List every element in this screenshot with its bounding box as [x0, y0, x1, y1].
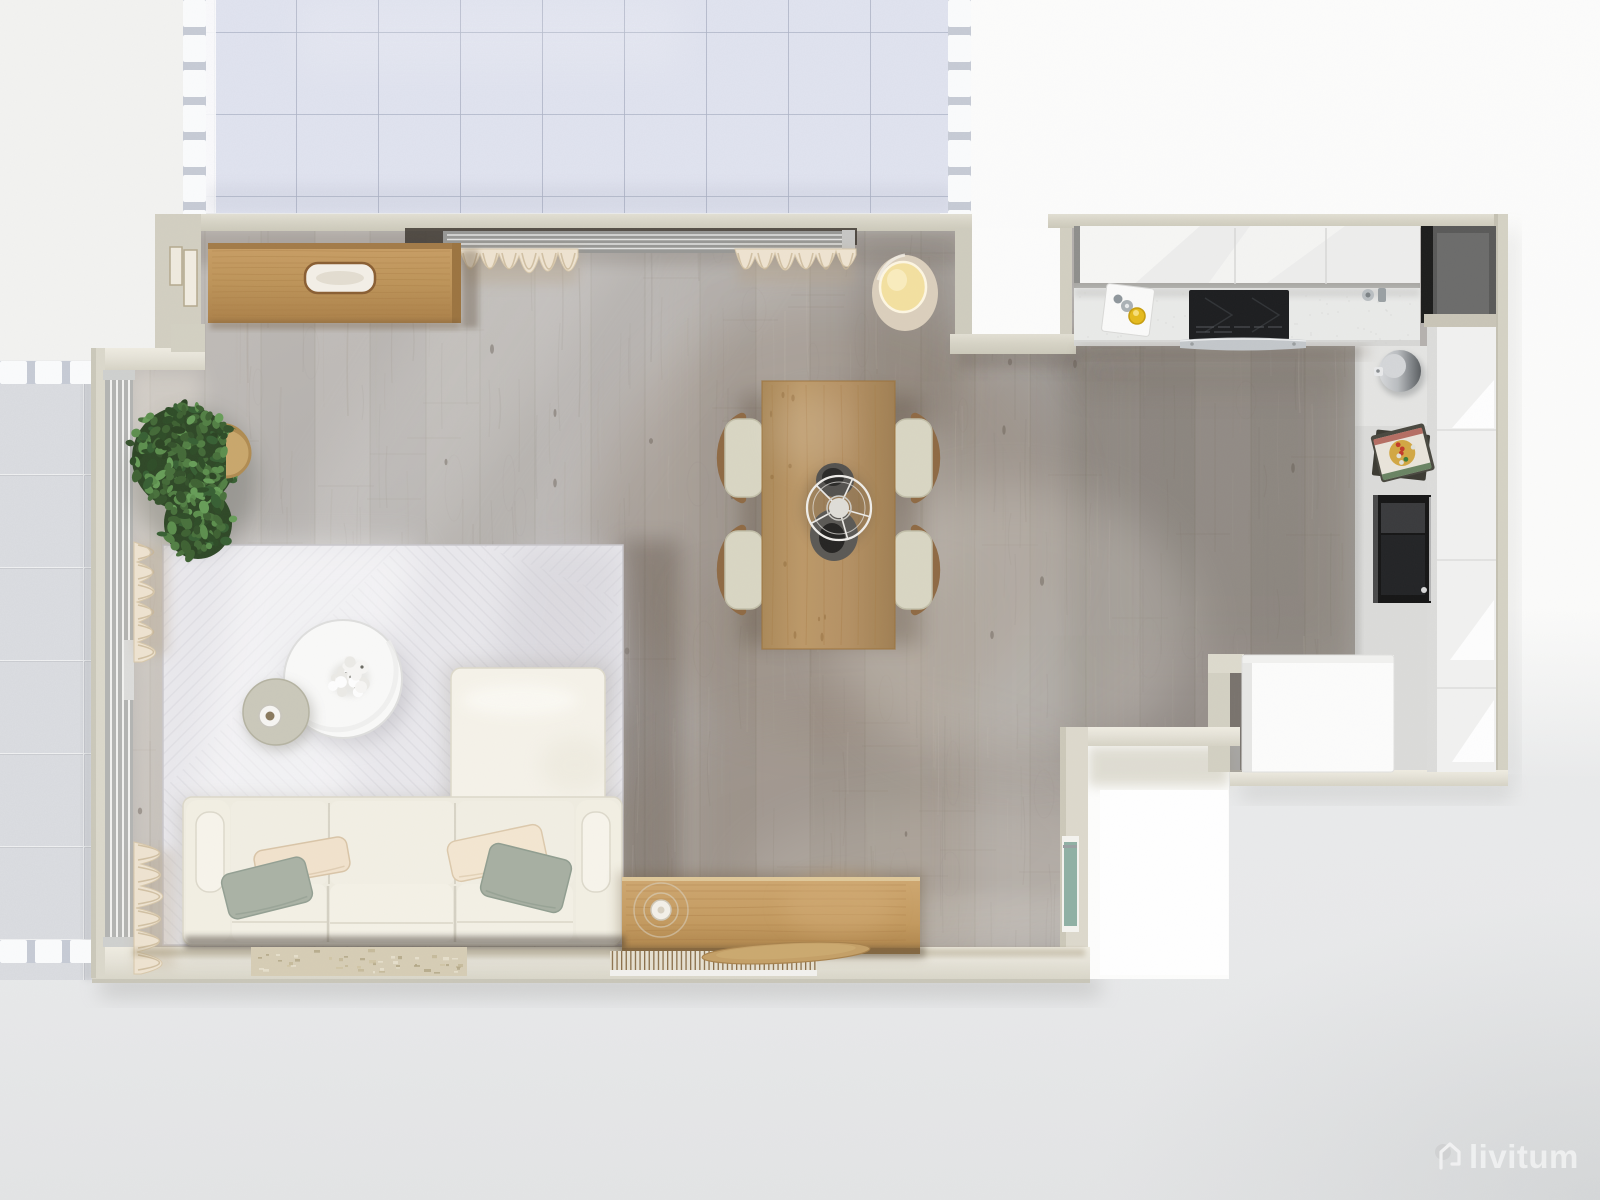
- svg-text:livitum: livitum: [1469, 1138, 1579, 1175]
